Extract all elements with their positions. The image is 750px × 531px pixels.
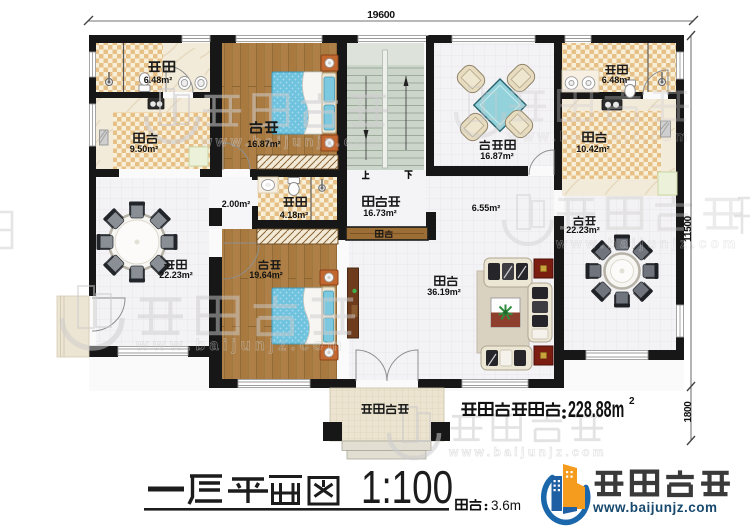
svg-text:6.55m²: 6.55m² <box>472 203 501 213</box>
svg-text:19.64m²: 19.64m² <box>249 270 283 280</box>
svg-text:2.00m²: 2.00m² <box>222 199 251 209</box>
svg-text:228.88m: 228.88m <box>568 398 624 423</box>
svg-text:1:100: 1:100 <box>361 461 453 513</box>
svg-text:22.23m²: 22.23m² <box>566 225 600 235</box>
svg-text:www.baijunjz.com: www.baijunjz.com <box>448 445 607 459</box>
svg-text:4.18m²: 4.18m² <box>280 210 309 220</box>
svg-text:www.baijunjz.com: www.baijunjz.com <box>135 337 346 354</box>
svg-text:3.6m: 3.6m <box>491 498 521 513</box>
svg-text:1800: 1800 <box>683 401 694 423</box>
svg-text:10.42m²: 10.42m² <box>576 144 610 154</box>
svg-text:6.48m²: 6.48m² <box>144 75 173 85</box>
svg-text:16.87m²: 16.87m² <box>247 139 281 149</box>
svg-text:16.73m²: 16.73m² <box>363 208 397 218</box>
svg-text:www.baijunjz.com: www.baijunjz.com <box>555 235 739 251</box>
svg-text:9.50m²: 9.50m² <box>130 144 159 154</box>
svg-text:www.baijunjz.com: www.baijunjz.com <box>592 500 718 515</box>
svg-text:www.baijunjz.com: www.baijunjz.com <box>200 133 384 149</box>
svg-text:19600: 19600 <box>367 9 395 21</box>
svg-text:11500: 11500 <box>683 215 694 241</box>
svg-text:22.23m²: 22.23m² <box>159 270 193 280</box>
svg-text:16.87m²: 16.87m² <box>480 151 514 161</box>
svg-text:6.48m²: 6.48m² <box>602 75 631 85</box>
svg-text:2: 2 <box>629 396 635 407</box>
svg-text:36.19m²: 36.19m² <box>427 287 461 297</box>
